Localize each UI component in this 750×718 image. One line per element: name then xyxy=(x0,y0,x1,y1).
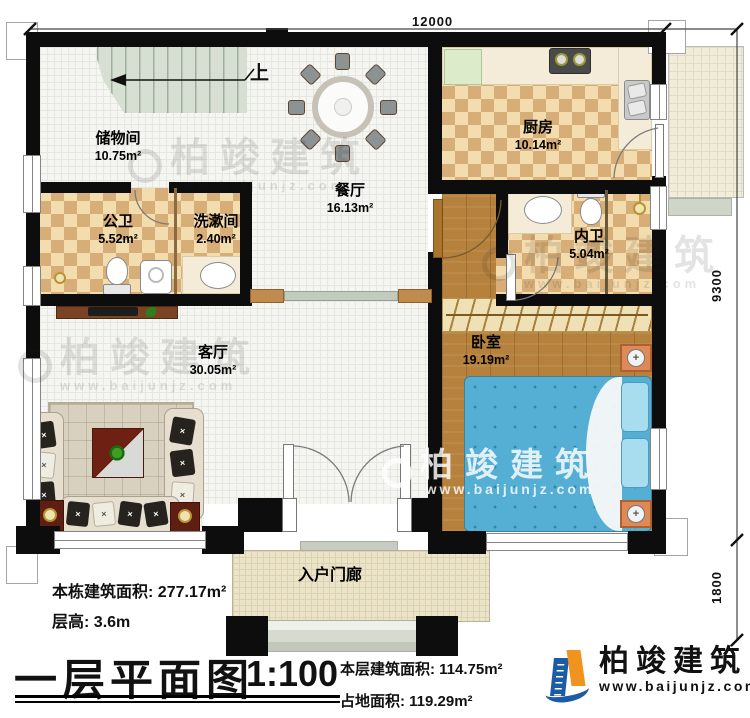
pillow xyxy=(621,438,649,488)
stove-burner xyxy=(573,53,586,66)
sliding-door-cap xyxy=(250,289,284,303)
room-name: 客厅 xyxy=(165,344,261,363)
room-label-washroom: 洗漱间 2.40m² xyxy=(168,213,264,247)
room-name: 储物间 xyxy=(70,130,166,149)
stove-burner xyxy=(555,53,568,66)
room-name: 厨房 xyxy=(490,119,586,138)
wall-dining-kitchen xyxy=(428,32,442,192)
room-label-kitchen: 厨房 10.14m² xyxy=(490,119,586,153)
washing-machine-door xyxy=(148,267,164,283)
table-plant xyxy=(108,444,126,462)
window-right-bath xyxy=(650,186,667,230)
dim-tick xyxy=(731,534,743,546)
floor-height-value: 3.6m xyxy=(94,614,130,631)
room-label-porch: 入户门廊 xyxy=(276,566,384,586)
dining-chair xyxy=(335,145,350,162)
window-right-kitchen xyxy=(650,84,667,120)
dim-tick xyxy=(731,23,743,35)
room-name: 餐厅 xyxy=(302,182,398,201)
brand-logo: 柏竣建筑 www.baijunjz.com xyxy=(545,646,750,704)
window-bottom-left xyxy=(54,531,206,549)
inner-bath-door-leaf xyxy=(506,254,516,301)
room-area: 5.04m² xyxy=(542,247,636,263)
wall-top xyxy=(26,32,666,47)
room-name: 入户门廊 xyxy=(276,566,384,586)
room-area: 19.19m² xyxy=(438,353,534,369)
wall-inner-bath-bottom xyxy=(496,294,666,306)
sofa-cushion: × xyxy=(92,501,116,527)
pillow xyxy=(621,382,649,432)
plan-scale: 1:100 xyxy=(246,653,338,695)
inner-bath-sink xyxy=(524,196,562,224)
room-area: 5.52m² xyxy=(70,232,166,248)
wall-entry-stub-left xyxy=(238,498,284,532)
window-left-1 xyxy=(23,155,41,213)
floor-area-value: 114.75m² xyxy=(439,661,502,678)
wall-inner-bath-left xyxy=(496,192,508,258)
entry-door-leaf xyxy=(400,444,411,500)
room-label-storage: 储物间 10.75m² xyxy=(70,130,166,164)
window-right-bedroom xyxy=(650,428,667,490)
bedroom-door-leaf xyxy=(433,199,443,258)
sofa-cushion: × xyxy=(117,501,142,528)
sofa-cushion: × xyxy=(169,416,196,446)
building-area-line: 本栋建筑面积: 277.17m² xyxy=(52,578,226,602)
room-area: 16.13m² xyxy=(302,201,398,217)
entry-door-jamb xyxy=(282,498,297,532)
plan-title: 一层平面图 xyxy=(14,646,254,708)
tv xyxy=(88,307,138,316)
window-left-2 xyxy=(23,266,41,306)
entry-threshold xyxy=(300,541,398,551)
fridge xyxy=(444,49,482,85)
dim-right-lower-value: 1800 xyxy=(709,571,724,604)
brand-website: www.baijunjz.com xyxy=(599,678,750,694)
room-label-dining: 餐厅 16.13m² xyxy=(302,182,398,216)
stairs-up-label: 上 xyxy=(250,58,269,85)
window-left-3 xyxy=(23,358,41,500)
toilet xyxy=(106,257,128,285)
room-area: 10.14m² xyxy=(490,138,586,154)
dining-table-center xyxy=(334,98,352,116)
porch-floor xyxy=(232,550,490,622)
floor-area-label: 本层建筑面积: xyxy=(340,661,435,678)
wall-kitchen-bottom xyxy=(428,180,666,194)
room-label-living: 客厅 30.05m² xyxy=(165,344,261,378)
dining-chair xyxy=(288,100,305,115)
floor-plan-sheet: + + × × × × × × × × × × xyxy=(0,0,750,718)
wall-right-1 xyxy=(652,32,666,84)
room-name: 洗漱间 xyxy=(168,213,264,232)
dim-right-upper-value: 9300 xyxy=(709,269,724,302)
wardrobe-rail xyxy=(446,314,648,316)
building-area-value: 277.17m² xyxy=(158,584,227,601)
side-table-medallion xyxy=(43,508,57,522)
dim-top-value: 12000 xyxy=(412,14,453,29)
side-table-medallion xyxy=(178,509,192,523)
building-area-label: 本栋建筑面积: xyxy=(52,584,153,601)
kitchen-door-leaf xyxy=(655,124,664,178)
staircase xyxy=(97,47,247,113)
room-name: 内卫 xyxy=(542,228,636,247)
title-underline-thin xyxy=(15,701,340,703)
sliding-door-cap xyxy=(398,289,432,303)
entry-door-jamb xyxy=(397,498,412,532)
room-name: 卧室 xyxy=(438,334,534,353)
room-label-public-bath: 公卫 5.52m² xyxy=(70,213,166,247)
wall-right-3 xyxy=(652,228,666,428)
floor-height-label: 层高: xyxy=(52,614,89,631)
porch-steps xyxy=(262,620,420,652)
room-name: 公卫 xyxy=(70,213,166,232)
room-area: 2.40m² xyxy=(168,232,264,248)
washroom-sink xyxy=(200,262,236,289)
wall-bedroom-bottom-b xyxy=(628,531,666,554)
footprint-label: 占地面积: xyxy=(340,693,405,710)
porch-pillar-right xyxy=(416,616,458,656)
footprint-value: 119.29m² xyxy=(409,693,472,710)
window-bedroom-bottom xyxy=(486,533,628,551)
footprint-line: 占地面积: 119.29m² xyxy=(340,690,473,711)
sliding-door-panel xyxy=(284,291,398,301)
room-label-bedroom: 卧室 19.19m² xyxy=(438,334,534,368)
wall-bedroom-bottom-a xyxy=(428,531,486,554)
title-underline-thick xyxy=(15,695,340,698)
wall-top-pillar xyxy=(266,28,288,47)
side-terrace xyxy=(668,46,744,198)
cabinet-plant xyxy=(146,307,156,317)
wall-bath-bottom xyxy=(26,294,252,306)
sofa-cushion: × xyxy=(170,449,196,478)
dining-chair xyxy=(380,100,397,115)
brand-name: 柏竣建筑 xyxy=(599,646,750,678)
wall-bath-top-a xyxy=(26,182,131,193)
room-label-inner-bath: 内卫 5.04m² xyxy=(542,228,636,262)
room-area: 30.05m² xyxy=(165,363,261,379)
floor-drain xyxy=(54,272,66,284)
brand-logo-icon xyxy=(545,646,591,704)
sofa-cushion: × xyxy=(66,501,90,527)
terrace-steps xyxy=(668,198,732,216)
dining-chair xyxy=(335,53,350,70)
nightstand-lamp: + xyxy=(627,349,645,367)
floor-height-line: 层高: 3.6m xyxy=(52,608,130,632)
floor-area-line: 本层建筑面积: 114.75m² xyxy=(340,658,503,679)
nightstand-lamp: + xyxy=(627,505,645,523)
floor-corridor xyxy=(442,188,496,296)
room-area: 10.75m² xyxy=(70,149,166,165)
inner-toilet xyxy=(580,198,602,225)
sofa-cushion: × xyxy=(143,500,168,527)
entry-door-leaf xyxy=(283,444,294,500)
